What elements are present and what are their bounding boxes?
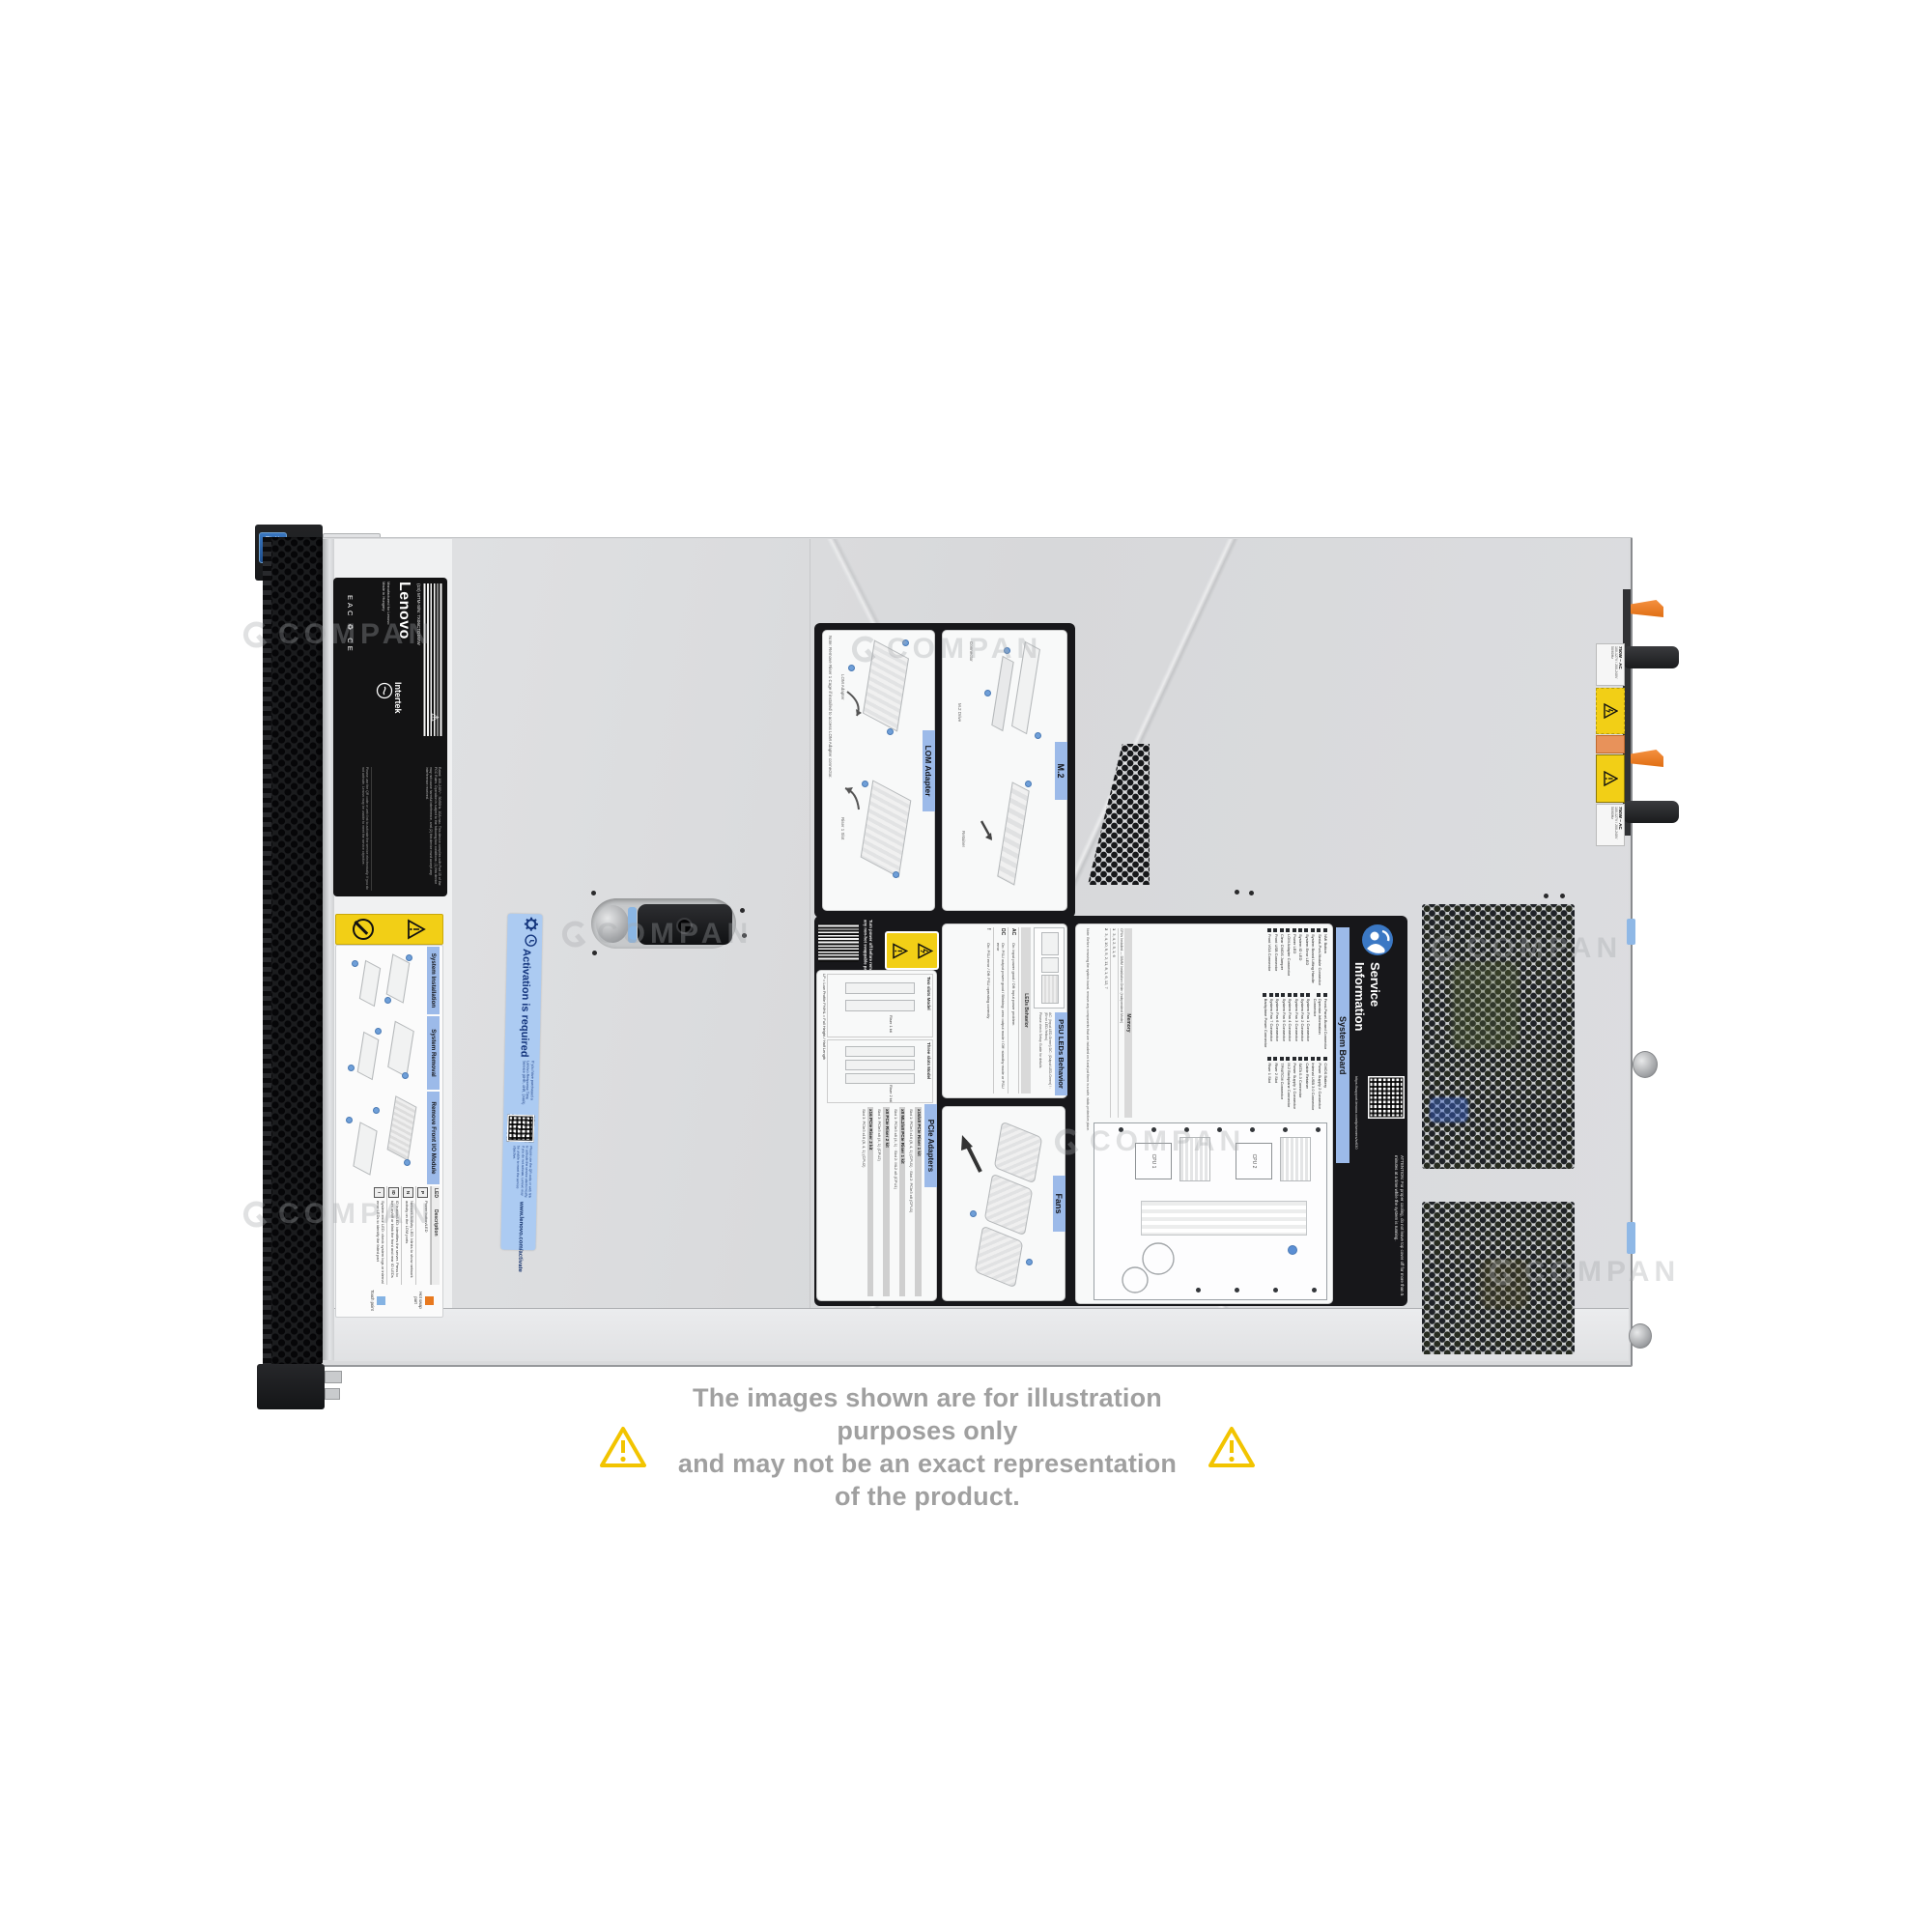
connector-name: Power LED [1292, 934, 1296, 953]
shock-warning-icon [1603, 703, 1618, 719]
disclaimer-warning-icon-right [1207, 1425, 1256, 1469]
riser-caption: Riser 1 kit [889, 1015, 894, 1033]
disclaimer: The images shown are for illustration pu… [599, 1381, 1256, 1513]
fans-illustration [948, 1114, 1048, 1293]
psu-leds-card: PSU LEDs Behavior AC: (Input LED-Green) … [942, 923, 1067, 1098]
lom-card-title: LOM Adapter [923, 730, 935, 811]
callout-square [1323, 993, 1327, 997]
front-warning-strip [335, 914, 443, 945]
memory-row-order: 3, 4, 10, 9, 5, 2, 11, 8, 1, 6, 12, 7 [1104, 933, 1109, 989]
psu-led-behavior: On: PSU output power good / Blinking: ze… [996, 943, 1006, 1093]
connector-item: Riser 2 Slot [1273, 1057, 1278, 1118]
psu-led-tag: AC [1010, 928, 1016, 940]
callout-square [1323, 1057, 1327, 1061]
psu1-release-latch [1631, 600, 1663, 617]
psu-led-rows: AC On: input power good / Off: input pow… [983, 927, 1019, 1094]
connector-item: M.2 Backplane Connector [1286, 1057, 1291, 1118]
watermark-text: COMPAN [1466, 932, 1622, 965]
connector-name: TPM/TCM Connector [1279, 1063, 1284, 1099]
lom-figure-2: Riser 1 Slot [836, 775, 919, 904]
diagram-callout-squares [1321, 1123, 1326, 1128]
connector-item: Clear CMOS Jumper [1279, 928, 1284, 989]
arrow-icon [978, 819, 995, 844]
connector-item: Power Supply 2 Connector [1317, 1057, 1321, 1118]
serial-text: (1S) MTM-S/N: 7X06CTO1WW [416, 583, 421, 738]
riser-kit-name: x16 PCIe Riser 2 kit [867, 1107, 874, 1296]
connector-name: System Fan 6 Connector [1275, 999, 1280, 1041]
connector-item: System Fan 5 Connector [1281, 993, 1286, 1054]
callout-square [1293, 1057, 1296, 1061]
watermark-text: COMPAN [1524, 1256, 1680, 1289]
riser-kit-name: x16/x8 PCIe Riser 1 kit [916, 1107, 923, 1296]
installation-illustration [343, 952, 420, 1009]
connector-name: Cable Retainer [1304, 1063, 1309, 1089]
connector-name: System Fan 2 Connector [1299, 999, 1304, 1041]
psu-led-row: DC On: PSU output power good / Blinking:… [994, 927, 1009, 1094]
watermark-logo-icon [1488, 1258, 1517, 1287]
connector-item: Front USB Connector [1273, 928, 1278, 989]
vent-blue-glow [1430, 1097, 1468, 1122]
connector-name: System Error LED [1304, 934, 1309, 965]
dimm-bank-1 [1280, 1137, 1311, 1181]
activation-icons [524, 917, 539, 947]
vent-pcb-tint [1451, 962, 1519, 1049]
callout-square [1306, 993, 1310, 997]
psu1-rating-label: 750W ~ AC 100-127V / 200-240V 50/60Hz [1596, 643, 1625, 686]
watermark-logo-icon [241, 620, 270, 649]
callout-square [1298, 1057, 1302, 1061]
connector-item: Serial-Port-Module Connector [1317, 928, 1321, 989]
rear-orange-strip-label [1596, 735, 1625, 753]
psu-led-tag: ! [985, 928, 991, 940]
label-warning-glyph: ⚠ [429, 713, 440, 722]
connector-name: SATA 0-3 Connector [1298, 1063, 1303, 1097]
activation-qr-code [507, 1115, 535, 1143]
connector-item: System Board Lifting Handle [1310, 928, 1315, 989]
callout-square [1298, 928, 1302, 932]
lom-adapter-card: LOM Adapter LOM Adapter Riser 1 Slot Not… [822, 630, 935, 911]
fan-cage-circles-icon [1114, 1237, 1181, 1295]
connector-list: NMI ButtonSerial-Port-Module ConnectorSy… [1138, 928, 1327, 1118]
connector-item: System Fan 1 Connector [1306, 993, 1311, 1054]
connector-name: System Fan 1 Connector [1306, 999, 1311, 1041]
watermark: COMPAN [241, 618, 434, 651]
pcie-card-title: PCIe Adapters [924, 1104, 937, 1187]
connector-item: TPM/TCM Connector [1279, 1057, 1284, 1118]
clock-icon [525, 934, 537, 947]
legend-touch-point: Touch point [370, 1289, 385, 1312]
watermark-logo-icon [241, 1200, 270, 1229]
callout-square [1281, 993, 1285, 997]
connector-name: CMOS Battery [1322, 1063, 1327, 1088]
lom-caption-1: LOM Adapter [839, 674, 845, 700]
callout-square [1275, 993, 1279, 997]
watermark-logo-icon [1053, 1127, 1082, 1156]
riser-kit: x8 PCIe Riser 2 kit Slot 3: PCIe3 x8 (4,… [877, 1107, 891, 1296]
lom-note: Note: Remove Riser 1 Cage if installed t… [827, 636, 833, 908]
callout-square [1280, 1057, 1284, 1061]
connector-item: Operator-Information Connector [1312, 993, 1321, 1054]
front-bezel-vents [263, 537, 323, 1364]
connector-item: Cable Retainer [1304, 1057, 1309, 1118]
psu-rear-diagram [1034, 927, 1065, 1009]
removal-illustration [343, 1022, 420, 1084]
section-remove-front-io: Remove Front I/O Module [337, 1092, 440, 1184]
model-caption: Three slots Model [924, 1040, 932, 1102]
psu-led-legend: AC: (Input LED-Green) DC: (Output LED-Gr… [1043, 1012, 1052, 1095]
callout-square [1267, 928, 1271, 932]
legend-label: Touch point [370, 1289, 375, 1312]
riser-model-1: Two slots Model Riser 1 kit [827, 974, 933, 1037]
product-photo: intel XEON 750W ~ AC [0, 0, 1932, 1932]
riser2-blue-tab [1627, 1222, 1635, 1254]
service-warning-chip [885, 931, 939, 970]
section-system-removal: System Removal [337, 1016, 440, 1090]
riser-kit-name: x8 PCIe Riser 2 kit [884, 1107, 891, 1296]
hot-surface-warning-icon [1603, 771, 1618, 786]
direction-arrow-icon [957, 1133, 986, 1176]
connector-item: SATA 0-3 Connector [1298, 1057, 1303, 1118]
watermark: COMPAN [241, 1198, 434, 1231]
connector-name: Riser 1 Slot [1267, 1063, 1272, 1083]
front-io-illustration [343, 1097, 420, 1179]
cover-seam [810, 539, 810, 1360]
watermark-text: COMPAN [887, 633, 1042, 666]
connector-name: Front-Panel-Board Connector [1322, 999, 1327, 1049]
psu-led-legend-2: Please check Setup Guide for details. [1038, 1012, 1042, 1095]
m2-card-title: M.2 [1055, 742, 1067, 800]
callout-square [1304, 928, 1308, 932]
connector-item: System Fan 2 Connector [1299, 993, 1304, 1054]
psu-led-row: ! On: PSU error / Off: PSU operating cor… [983, 927, 994, 1094]
psu-card-title: PSU LEDs Behavior [1055, 1012, 1067, 1095]
connector-name: Serial-Port-Module Connector [1317, 934, 1321, 985]
watermark-logo-icon [850, 635, 879, 664]
connector-item: Power LED [1292, 928, 1296, 989]
board-blue-callout [1288, 1245, 1297, 1255]
memory-row-key: 1 [1112, 928, 1117, 930]
touch-legend: Hot swap part Touch point [339, 1287, 440, 1314]
system-board-note: Note: Before removing the system board, … [1086, 928, 1090, 1299]
riser-model-2: Three slots Model Riser 2 kit [827, 1039, 933, 1103]
riser-kit: x16 PCIe Riser 2 kit Slot 3: PCIe3 x16 (… [861, 1107, 874, 1296]
service-barcode [818, 923, 859, 962]
led-icon: N [403, 1187, 413, 1198]
activation-note: Please use the QR code or web link to ac… [511, 1146, 532, 1200]
riser-kit-slots: Slot 3: PCIe3 x8 (4, 1) (CPU2) [877, 1107, 884, 1296]
connector-name: System Fan 5 Connector [1281, 999, 1286, 1041]
pcie-adapters-card: PCIe Adapters Two slots Model Riser 1 ki… [816, 970, 937, 1301]
psu-rating-text-2: 750W ~ AC [1618, 805, 1624, 845]
section-title: System Installation [427, 947, 440, 1014]
activation-title: Activation is required [519, 949, 532, 1058]
etl-circle-icon [376, 682, 393, 699]
callout-square [1311, 1057, 1315, 1061]
activation-body: If you have purchased a Lenovo Response … [521, 1061, 535, 1111]
callout-square [1267, 1057, 1271, 1061]
connector-name: System Board Lifting Handle [1310, 934, 1315, 983]
connector-item: System Fan 6 Connector [1275, 993, 1280, 1054]
psu2-rating-label: 750W ~ AC 100-127V / 200-240V 50/60Hz [1596, 804, 1625, 846]
callout-square [1273, 1057, 1277, 1061]
connector-name: Backplane Power Connector [1263, 999, 1267, 1048]
psu2-release-latch [1631, 750, 1663, 767]
riser1-blue-tab [1627, 919, 1635, 945]
no-touch-icon [353, 919, 374, 940]
touch-point-color-chip [377, 1296, 385, 1305]
connector-item: System Fan 3 Connector [1293, 993, 1298, 1054]
memory-subtitle: CPUs Installed — DIMM Installation Order… [1119, 928, 1124, 1118]
rear-warning-label-1 [1596, 688, 1625, 734]
led-icon: ! [374, 1187, 384, 1198]
riser-kit-tables: x16/x8 PCIe Riser 1 kit Slot 1: PCIe3 x1… [819, 1107, 922, 1296]
model-caption: Two slots Model [924, 975, 932, 1037]
curve-arrow-icon [841, 784, 863, 811]
riser-kit: x16/x8 PCIe Riser 1 kit Slot 1: PCIe3 x1… [909, 1107, 923, 1296]
leds-behavior-bar: LEDs Behavior [1021, 927, 1031, 1094]
disclaimer-text: The images shown are for illustration pu… [663, 1381, 1192, 1513]
psu2-handle [1623, 801, 1679, 823]
connector-name: LOM Adapter Connector [1286, 934, 1291, 976]
legend-label: Hot swap part [413, 1289, 423, 1312]
disclaimer-line-2: and may not be an exact representation o… [663, 1447, 1192, 1513]
psu-led-behavior: On: input power good / Off: input power … [1010, 943, 1016, 1025]
watermark-text: COMPAN [278, 618, 434, 651]
riser-kit-slots: Slot 1: PCIe3 x8 (4, 1) · Slot 2: ML2 x8… [893, 1107, 899, 1296]
callout-square [1317, 928, 1321, 932]
connector-name: Internal USB 3.0 Connector [1310, 1063, 1315, 1110]
connector-item: LOM Adapter Connector [1286, 928, 1291, 989]
riser-caption: Riser 2 kit [889, 1085, 894, 1102]
watermark-text: COMPAN [1090, 1125, 1245, 1158]
disclaimer-warning-icon-left [599, 1425, 647, 1469]
rack-ear-bottom [257, 1364, 325, 1409]
connector-name: Front VGA Connector [1267, 934, 1272, 971]
connector-item: System Error LED [1304, 928, 1309, 989]
system-board-card: NMI ButtonSerial-Port-Module ConnectorSy… [1075, 923, 1333, 1304]
legend-hot-swap: Hot swap part [413, 1289, 434, 1312]
thumbscrew-2 [1629, 1323, 1652, 1349]
server-top-view: intel XEON 750W ~ AC [0, 0, 1932, 1932]
intertek-mark: Intertek [371, 682, 403, 759]
callout-square [1317, 1057, 1321, 1061]
section-title: Remove Front I/O Module [427, 1092, 440, 1184]
riser-kit-slots: Slot 3: PCIe3 x16 (8, 4, 1) (CPU2) [861, 1107, 867, 1296]
support-qr-code [1368, 1076, 1405, 1119]
led-icon: ID [388, 1187, 399, 1198]
connector-name: System Fan 7 Connector [1268, 999, 1273, 1041]
cover-screw-dots [0, 0, 5, 5]
thumbscrew-1 [1633, 1051, 1658, 1078]
memory-title: Memory [1124, 928, 1132, 1118]
hot-swap-color-chip [425, 1296, 434, 1305]
callout-square [1269, 993, 1273, 997]
riser-kit-slots: Slot 1: PCIe3 x16 (8, 4, 1) (CPU1) · Slo… [909, 1107, 916, 1296]
psu-rating-text: 750W ~ AC [1618, 644, 1624, 685]
m2-card: M.2 Connector M.2 Drive Retainer [942, 630, 1067, 911]
watermark: COMPAN [1488, 1256, 1680, 1289]
callout-square [1286, 1057, 1290, 1061]
connector-name: Riser 2 Slot [1273, 1063, 1278, 1083]
watermark: COMPAN [1053, 1125, 1245, 1158]
callout-square [1263, 993, 1266, 997]
attention-note: ATTENTION: For proper cooling, do not le… [1368, 1155, 1405, 1296]
psu-led-behavior: On: PSU error / Off: PSU operating corre… [985, 943, 991, 1018]
watermark-logo-icon [1430, 934, 1459, 963]
connector-item: NMI Button [1322, 928, 1327, 989]
support-url: https://support.lenovo.com/p/servers/sr6… [1354, 1076, 1359, 1134]
profiles-note: LP = Low Profile FH/HL = Full Height / H… [822, 974, 827, 1119]
connector-item: Front VGA Connector [1267, 928, 1272, 989]
riser-kit-name: x8 ML2/x8 PCIe Riser 1 kit [899, 1107, 906, 1296]
connector-name: Power Supply 2 Connector [1317, 1063, 1321, 1109]
label-fineprint-2: Please use the QR code or web link to ac… [336, 767, 372, 891]
connector-item: Power Supply 1 Connector [1292, 1057, 1296, 1118]
gear-icon [524, 917, 538, 931]
shock-triangle-icon [917, 943, 933, 959]
connector-item: Front-Panel-Board Connector [1322, 993, 1327, 1054]
connector-name: System Fan 4 Connector [1287, 999, 1292, 1041]
watermark-text: COMPAN [278, 1198, 434, 1231]
connector-name: Power Supply 1 Connector [1292, 1063, 1296, 1109]
callout-square [1288, 993, 1292, 997]
rear-warning-label-2 [1596, 754, 1625, 803]
m2-caption-2: M.2 Drive [956, 703, 962, 722]
callout-square [1300, 993, 1304, 997]
callout-square [1273, 928, 1277, 932]
connector-item: Internal USB 3.0 Connector [1310, 1057, 1315, 1118]
dimm-bank-3 [1141, 1201, 1307, 1236]
m2-figure-2: Retainer [949, 773, 1051, 904]
callout-square [1293, 993, 1297, 997]
connector-name: System ID LED [1298, 934, 1303, 960]
callout-square [1311, 928, 1315, 932]
warning-triangle-icon [407, 919, 426, 940]
curve-arrow-icon [843, 690, 865, 719]
service-person-icon [1361, 923, 1394, 956]
warning-triangle-icon [892, 943, 908, 959]
watermark-logo-icon [560, 920, 589, 949]
callout-square [1304, 1057, 1308, 1061]
disclaimer-line-1: The images shown are for illustration pu… [663, 1381, 1192, 1447]
memory-row-key: 2 [1104, 928, 1109, 930]
connector-name: M.2 Backplane Connector [1286, 1063, 1291, 1107]
callout-square [1293, 928, 1296, 932]
fans-card-title: Fans [1053, 1176, 1065, 1232]
callout-square [1317, 993, 1321, 997]
bezel-flange [263, 537, 271, 1364]
callout-square [1286, 928, 1290, 932]
connector-item: System ID LED [1298, 928, 1303, 989]
connector-item: Backplane Power Connector [1263, 993, 1267, 1054]
watermark-text: COMPAN [597, 918, 753, 951]
m2-caption-3: Retainer [960, 831, 966, 847]
watermark: COMPAN [850, 633, 1042, 666]
callout-square [1280, 928, 1284, 932]
psu1-handle [1623, 646, 1679, 668]
section-system-installation: System Installation [337, 947, 440, 1014]
callout-square [1323, 928, 1327, 932]
led-icon: P [417, 1187, 428, 1198]
ear-latch-nub-2 [325, 1388, 340, 1400]
riser-kit: x8 ML2/x8 PCIe Riser 1 kit Slot 1: PCIe3… [893, 1107, 906, 1296]
lom-caption-2: Riser 1 Slot [839, 817, 845, 839]
memory-row-order: 3, 4, 2, 5, 1, 6 [1112, 933, 1117, 956]
connector-name: System Fan 3 Connector [1293, 999, 1298, 1041]
connector-name: Front USB Connector [1273, 934, 1278, 971]
connector-item: Riser 1 Slot [1267, 1057, 1272, 1118]
psu-led-row: AC On: input power good / Off: input pow… [1009, 927, 1019, 1094]
activation-label: Activation is required If you have purch… [500, 914, 542, 1251]
connector-name: NMI Button [1322, 934, 1327, 953]
connector-item: System Fan 4 Connector [1287, 993, 1292, 1054]
connector-name: Clear CMOS Jumper [1279, 934, 1284, 970]
watermark: COMPAN [560, 918, 753, 951]
psu-led-tag: DC [996, 928, 1006, 940]
intertek-text: Intertek [393, 682, 403, 759]
system-board-title-bar: System Board [1336, 927, 1350, 1163]
psu-rating-lines: 100-127V / 200-240V 50/60Hz [1609, 644, 1618, 685]
label-fineprint: Rated: 100-240V~, 50/60Hz, 10A max. This… [424, 767, 441, 891]
memory-table: Memory CPUs Installed — DIMM Installatio… [1103, 928, 1132, 1118]
ear-latch-nub-1 [325, 1371, 342, 1383]
connector-name: Operator-Information Connector [1312, 999, 1321, 1054]
fans-card: Fans [942, 1106, 1065, 1301]
connector-item: System Fan 7 Connector [1268, 993, 1273, 1054]
connector-item: CMOS Battery [1322, 1057, 1327, 1118]
psu-rating-lines-2: 100-127V / 200-240V 50/60Hz [1609, 805, 1618, 845]
section-title: System Removal [427, 1016, 440, 1090]
watermark: COMPAN [1430, 932, 1622, 965]
